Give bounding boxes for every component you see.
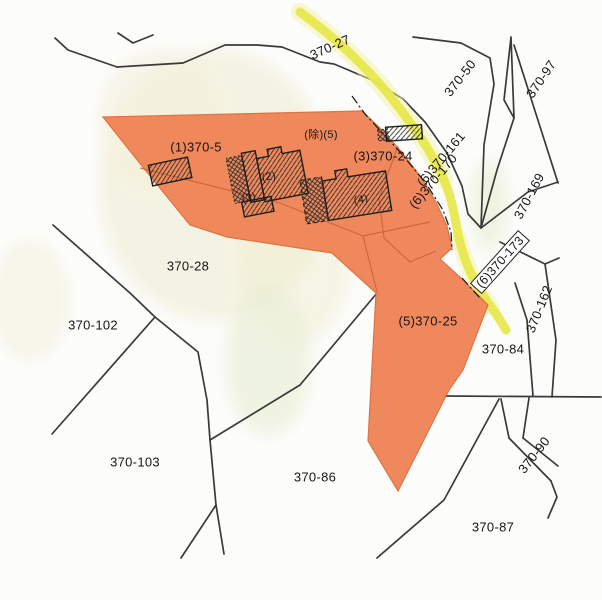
building-5 <box>378 125 423 142</box>
map-viewport[interactable]: 370-27370-50370-97(1)370-5(3)370-24(6)37… <box>0 0 602 600</box>
cadastral-map-graphic <box>0 0 602 600</box>
